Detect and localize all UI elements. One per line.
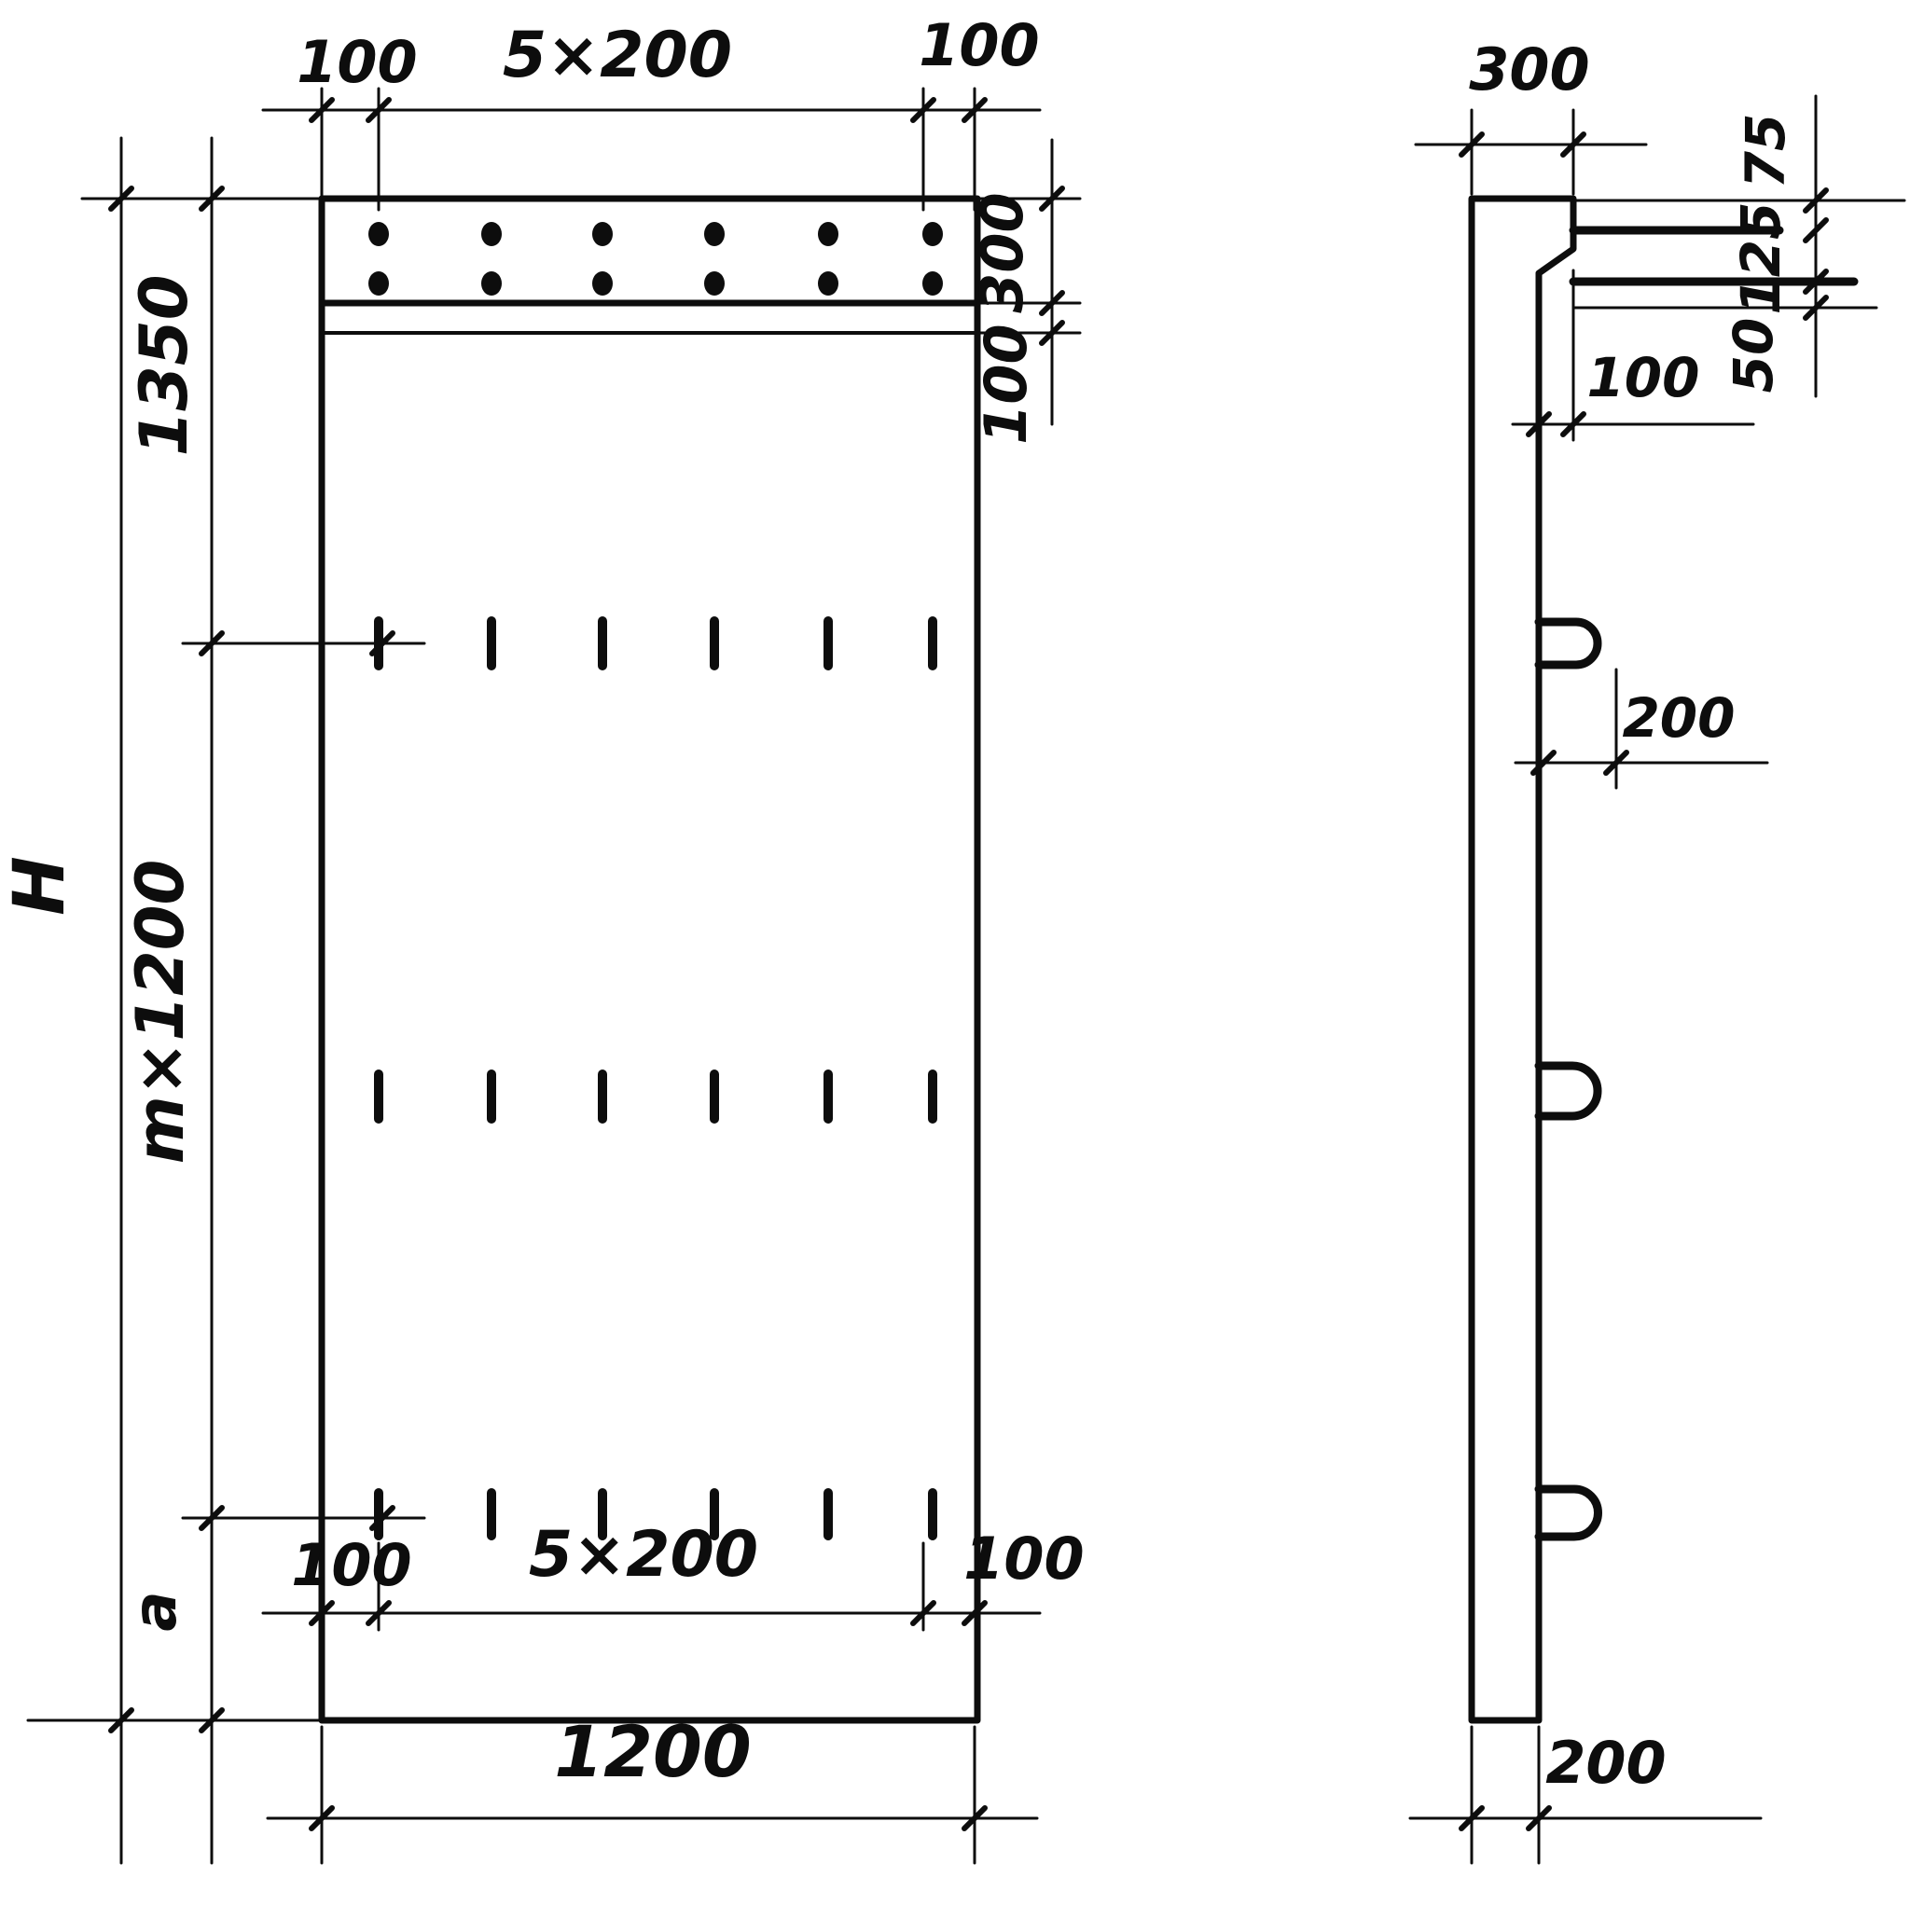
anchor-hole <box>592 271 613 296</box>
slot <box>928 1488 937 1540</box>
dim-label-bottom-thickness: 200 <box>1545 1729 1666 1797</box>
technical-drawing-sheet: 1350 m×1200 a H 100 5×200 100 <box>0 0 1910 1932</box>
side-bottom-dimension: 200 <box>1410 1727 1761 1863</box>
slot <box>824 616 833 670</box>
slot <box>487 1069 496 1124</box>
dim-label-dowel-spacing: 125 <box>1729 201 1792 314</box>
slot <box>487 616 496 670</box>
side-top-dimension: 300 <box>1416 35 1646 194</box>
dim-label-panel-width: 1200 <box>554 1710 752 1793</box>
anchor-hole <box>481 222 502 246</box>
dim-label-band-height: 300 <box>968 192 1036 312</box>
slot <box>710 616 719 670</box>
panel-outline <box>322 199 977 1720</box>
top-dimension-chain: 100 5×200 100 <box>263 11 1040 210</box>
dim-label-top-right-margin: 100 <box>919 11 1039 79</box>
hook-projection-dimension: 200 <box>1516 669 1767 788</box>
dim-label-top-left-margin: 100 <box>297 28 417 96</box>
dim-label-bottom-left-margin: 100 <box>291 1531 411 1599</box>
dim-label-dowel-bottom-offset: 50 <box>1722 318 1785 393</box>
anchor-hole <box>704 271 725 296</box>
slot <box>598 616 607 670</box>
slot <box>824 1069 833 1124</box>
dim-label-bottom-slot-spacing: 5×200 <box>529 1518 758 1592</box>
slot <box>598 1069 607 1124</box>
anchor-hole <box>704 222 725 246</box>
right-dimension-chain: 300 100 <box>968 140 1080 445</box>
anchor-hole <box>818 271 838 296</box>
dim-label-ledge-depth: 100 <box>1586 346 1699 409</box>
hook-loop <box>1539 1489 1599 1537</box>
slot <box>824 1488 833 1540</box>
hook-loop <box>1539 622 1598 665</box>
dim-label-bottom-right-margin: 100 <box>963 1525 1084 1593</box>
dim-label-top-section: 1350 <box>126 275 202 457</box>
slot <box>487 1488 496 1540</box>
anchor-hole <box>818 222 838 246</box>
dim-label-strip-height: 100 <box>972 324 1040 444</box>
dim-label-top-hole-spacing: 5×200 <box>503 19 732 92</box>
anchor-hole <box>592 222 613 246</box>
side-view: 300 75 125 50 100 <box>1410 35 1904 1863</box>
anchor-hole <box>922 222 943 246</box>
hook-loop <box>1539 1066 1598 1116</box>
slot <box>928 1069 937 1124</box>
anchor-hole <box>368 222 389 246</box>
anchor-hole <box>922 271 943 296</box>
anchor-hole <box>481 271 502 296</box>
slot <box>710 1069 719 1124</box>
slot <box>374 1069 383 1124</box>
dim-label-total-height: H <box>0 856 80 916</box>
dim-label-bottom-section: a <box>121 1591 190 1631</box>
slot <box>928 616 937 670</box>
dim-label-dowel-top-offset: 75 <box>1734 114 1797 189</box>
anchor-hole <box>368 271 389 296</box>
front-view: 1350 m×1200 a H 100 5×200 100 <box>0 11 1085 1863</box>
dim-label-top-thickness: 300 <box>1469 35 1589 103</box>
panel-drawing: 1350 m×1200 a H 100 5×200 100 <box>0 0 1910 1932</box>
ledge-dimension: 100 <box>1513 270 1753 440</box>
dim-label-hook-projection: 200 <box>1622 686 1735 750</box>
dim-label-repeat-section: m×1200 <box>122 860 199 1164</box>
